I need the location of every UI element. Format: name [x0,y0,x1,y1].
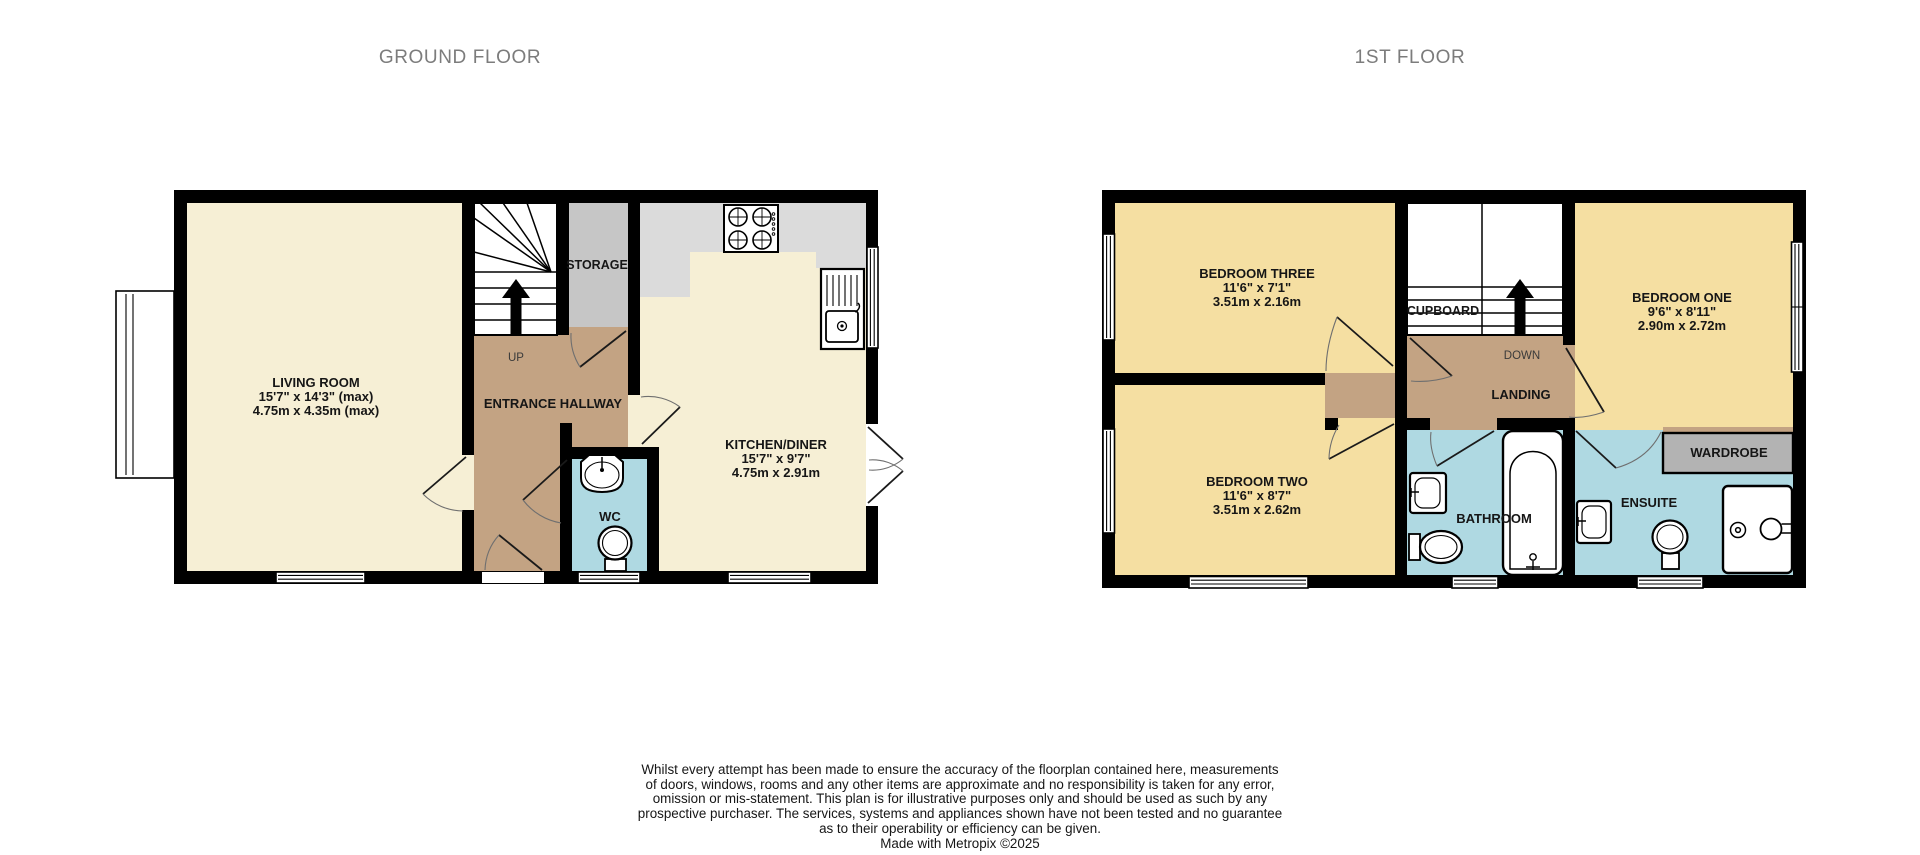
window [1103,429,1115,533]
bedroom-three-size-imperial: 11'6" x 7'1" [1223,280,1291,295]
cupboard-label: CUPBOARD [1407,304,1479,318]
entrance-hallway-room [474,335,628,447]
window [1189,577,1308,589]
kitchen-sink-icon [821,269,864,349]
ensuite-sink-icon [1577,501,1611,543]
bathtub-icon [1503,431,1563,575]
living-room-size-metric: 4.75m x 4.35m (max) [253,403,379,418]
disclaimer-line: prospective purchaser. The services, sys… [0,807,1920,822]
ensuite-door-opening [1575,418,1663,430]
wall [1115,373,1325,385]
bedroom-three-label: BEDROOM THREE [1199,266,1315,281]
stairs-down-label: DOWN [1504,350,1540,362]
kitchen-counter [816,252,866,268]
stairs-up-label: UP [508,352,524,364]
ensuite-label: ENSUITE [1621,495,1678,510]
wall [1563,203,1575,345]
wall [462,203,474,455]
kitchen-door-opening [628,395,640,447]
storage-label: STORAGE [566,258,628,272]
bathroom-door-opening [1430,418,1497,430]
kitchen-diner-size-metric: 4.75m x 2.91m [732,465,820,480]
wall [628,203,640,395]
window [276,572,365,583]
bedroom-one-size-metric: 2.90m x 2.72m [1638,318,1726,333]
bedroom-two-size-metric: 3.51m x 2.62m [1213,502,1301,517]
bathroom-label: BATHROOM [1456,511,1532,526]
window [578,572,640,583]
kitchen-diner-size-imperial: 15'7" x 9'7" [741,451,810,466]
bedroom-two-size-imperial: 11'6" x 8'7" [1223,488,1291,503]
window [1792,242,1804,372]
bathroom-sink-icon [1410,473,1446,513]
staircase-up [474,203,557,335]
french-doors [866,424,903,506]
bathroom-toilet-icon [1409,531,1462,563]
wall [1497,418,1575,430]
wc-sink-icon [581,455,623,492]
credit-line: Made with Metropix ©2025 [0,837,1920,852]
wc-label: WC [599,509,621,524]
landing-floor [1325,373,1395,418]
window [728,572,811,583]
wardrobe-label: WARDROBE [1690,445,1768,460]
hallway-floor [474,447,560,571]
wall [1325,418,1338,430]
bedroom-three-size-metric: 3.51m x 2.16m [1213,294,1301,309]
wall [1395,203,1407,588]
disclaimer-line: as to their operability or efficiency ca… [0,822,1920,837]
wall [1407,418,1430,430]
bedroom-one-label: BEDROOM ONE [1632,290,1732,305]
kitchen-diner-label: KITCHEN/DINER [725,437,827,452]
bedroom-one-door-opening [1563,345,1575,418]
disclaimer-line: Whilst every attempt has been made to en… [0,763,1920,778]
window [1637,577,1703,589]
ground-floor-plan: LIVING ROOM 15'7" x 14'3" (max) 4.75m x … [100,180,930,600]
entrance-hallway-label: ENTRANCE HALLWAY [484,396,623,411]
first-floor-title: 1ST FLOOR [1250,47,1570,69]
bedroom-two-label: BEDROOM TWO [1206,474,1308,489]
living-room-size-imperial: 15'7" x 14'3" (max) [259,389,374,404]
first-floor-plan: BEDROOM THREE 11'6" x 7'1" 3.51m x 2.16m… [1090,180,1820,600]
window [1452,577,1498,589]
bedroom-one-size-imperial: 9'6" x 8'11" [1648,304,1716,319]
stove-icon [724,205,778,252]
shower-icon [1723,486,1792,573]
living-door-opening [462,455,474,510]
living-room-label: LIVING ROOM [272,375,359,390]
landing-room [1407,335,1563,418]
disclaimer-line: omission or mis-statement. This plan is … [0,792,1920,807]
bay-window [116,291,174,478]
wall [1563,430,1575,575]
hallway-floor [569,327,628,335]
disclaimer-line: of doors, windows, rooms and any other i… [0,778,1920,793]
kitchen-counter [640,252,690,297]
window [1103,234,1115,340]
window [867,247,878,348]
wall [462,510,474,571]
disclaimer: Whilst every attempt has been made to en… [0,763,1920,851]
ground-floor-title: GROUND FLOOR [300,47,620,69]
landing-label: LANDING [1491,387,1550,402]
